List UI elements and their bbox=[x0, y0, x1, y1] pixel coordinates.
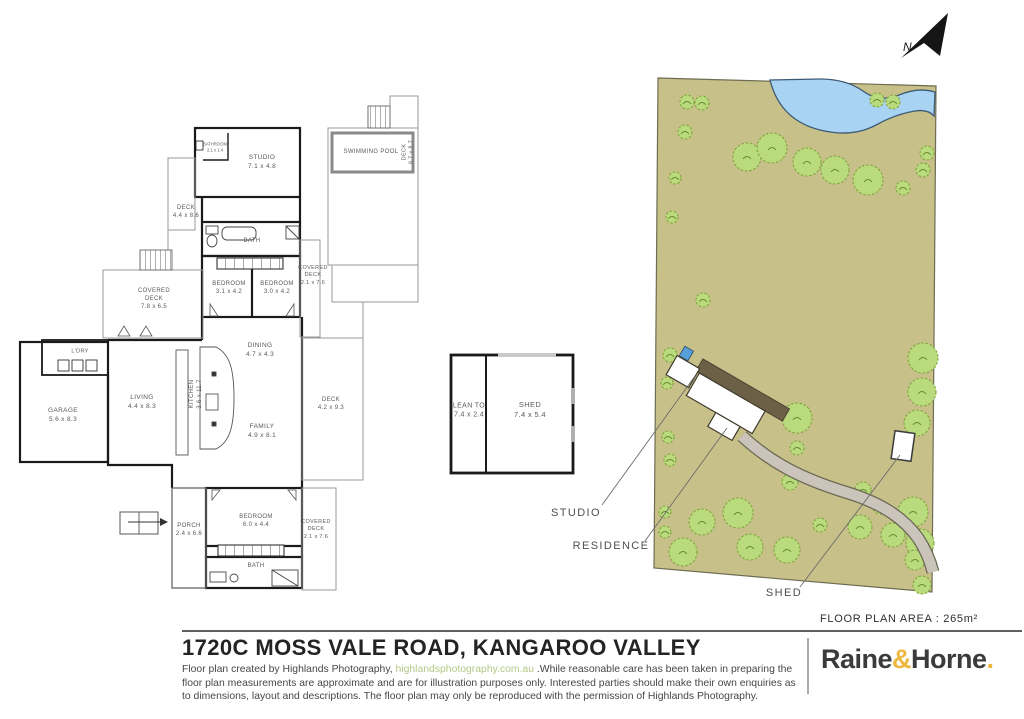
room-label-bedroom-2: BEDROOM 3.0 x 4.2 bbox=[260, 280, 293, 296]
room-label-covered-deck-bottom: COVERED DECK 2.1 x 7.6 bbox=[301, 519, 331, 541]
artwork-layer bbox=[0, 0, 1024, 719]
room-label-studio: STUDIO 7.1 x 4.8 bbox=[248, 154, 276, 172]
room-label-deck-pool: DECK 8.7 x 8.7 bbox=[402, 140, 417, 164]
room-label-dining: DINING 4.7 x 4.3 bbox=[246, 342, 274, 360]
site-label-residence: RESIDENCE bbox=[573, 540, 650, 552]
room-label-bedroom-3: BEDROOM 6.0 x 4.4 bbox=[239, 513, 272, 529]
room-label-garage: GARAGE 5.6 x 8.3 bbox=[48, 407, 78, 425]
room-label-deck-studio: DECK 4.4 x 8.6 bbox=[173, 204, 199, 220]
disclaimer-prefix: Floor plan created by Highlands Photogra… bbox=[182, 664, 396, 675]
page-title: 1720C MOSS VALE ROAD, KANGAROO VALLEY bbox=[182, 635, 701, 661]
floor-plan-sheet: N STUDIO 7.1 x 4.8 BATHROOM 2.1 x 1.4 DE… bbox=[0, 0, 1024, 719]
room-label-porch: PORCH 2.4 x 6.6 bbox=[176, 522, 202, 538]
brand-horne: Horne bbox=[911, 644, 987, 674]
site-label-shed: SHED bbox=[766, 587, 802, 599]
room-label-studio-bath: BATHROOM 2.1 x 1.4 bbox=[203, 141, 227, 152]
room-label-ldry: L'DRY bbox=[71, 348, 88, 355]
room-label-living: LIVING 4.4 x 8.3 bbox=[128, 394, 156, 412]
brand-dot: . bbox=[987, 644, 994, 674]
north-letter: N bbox=[903, 40, 912, 54]
disclaimer-text: Floor plan created by Highlands Photogra… bbox=[182, 663, 796, 704]
floor-plan-area-text: FLOOR PLAN AREA : 265m² bbox=[820, 613, 978, 625]
room-label-family: FAMILY 4.9 x 8.1 bbox=[248, 423, 276, 441]
brand-ampersand: & bbox=[892, 644, 911, 674]
photography-link[interactable]: highlandsphotography.com.au bbox=[396, 664, 534, 675]
room-label-deck-right: DECK 4.2 x 9.3 bbox=[318, 396, 344, 412]
room-label-swimming-pool: SWIMMING POOL bbox=[344, 148, 399, 156]
site-plan bbox=[602, 78, 938, 594]
room-label-bath-top: BATH bbox=[244, 237, 261, 245]
room-label-bath-bottom: BATH bbox=[248, 562, 265, 570]
site-label-studio: STUDIO bbox=[551, 507, 601, 519]
shed-footprint bbox=[891, 431, 915, 462]
raine-and-horne-logo: Raine&Horne. bbox=[821, 644, 994, 675]
room-label-lean-to: LEAN TO 7.4 x 2.4 bbox=[453, 402, 485, 421]
room-label-covered-deck-left: COVERED DECK 7.8 x 6.5 bbox=[138, 287, 170, 311]
room-label-covered-deck-right: COVERED DECK 2.1 x 7.6 bbox=[298, 265, 328, 287]
room-label-bedroom-1: BEDROOM 3.1 x 4.2 bbox=[212, 280, 245, 296]
room-label-shed: SHED 7.4 x 5.4 bbox=[514, 400, 546, 420]
room-label-kitchen: KITCHEN 3.6 x 11.7 bbox=[188, 379, 204, 408]
brand-raine: Raine bbox=[821, 644, 892, 674]
